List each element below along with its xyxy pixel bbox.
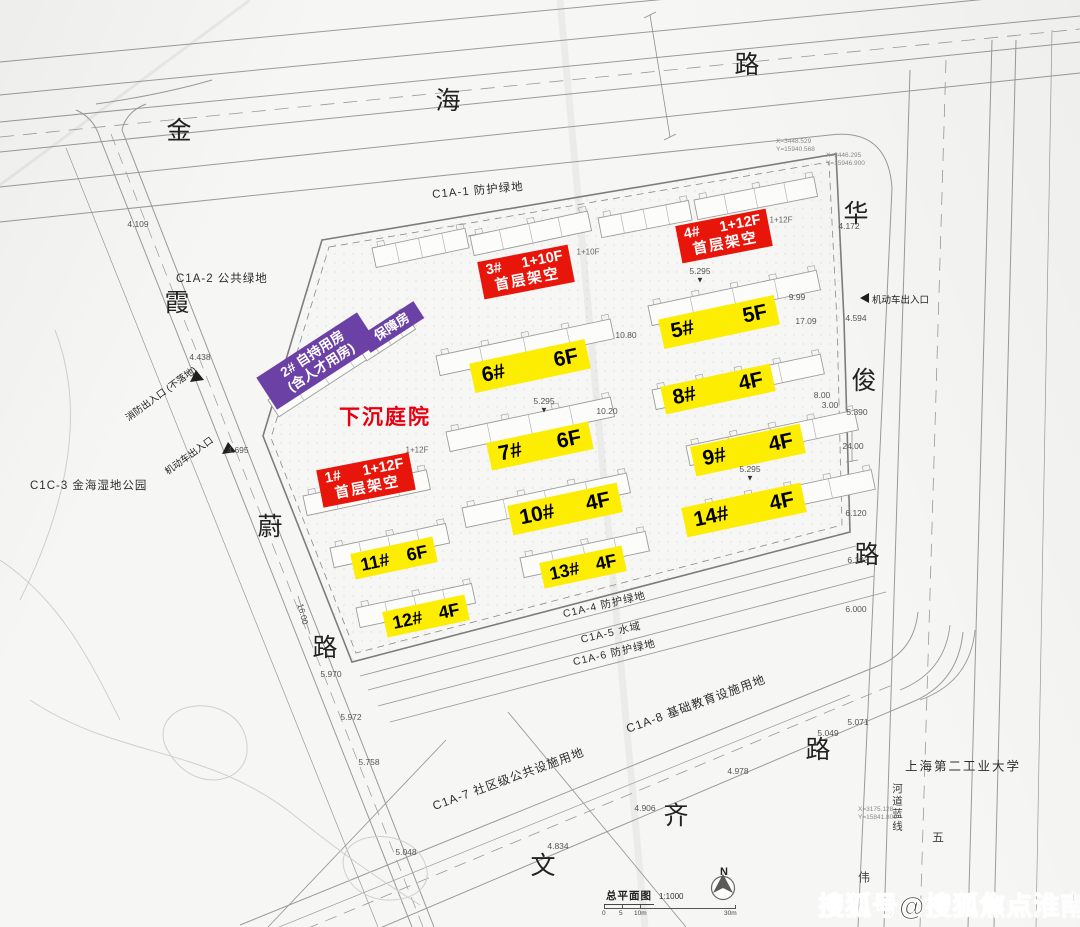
titleblock: 总平面图1:1000 0 5 10m 30m [604,888,754,915]
jinhai-road-lines [0,0,1080,236]
road-xiawei-char-2: 蔚 [257,507,282,543]
survey-coord: X=3175.128Y=15841.800 [858,806,897,821]
basemap-drawing [0,0,1080,927]
elevation-label: 5.049 [817,728,838,738]
survey-coord: X=3446.295Y=15946.900 [826,152,865,167]
road-jinhai-char-1: 金 [166,111,191,147]
building-7-floors: 6F [555,426,584,455]
building-10-floors: 4F [584,488,613,517]
road-wenqi-char-1: 文 [530,846,555,882]
dimension-label: 10.80 [615,330,636,340]
elevation-label: 5.390 [846,407,867,417]
elevation-label: 5.758 [358,757,379,767]
elevation-label: 4.834 [547,841,568,851]
road-huajun-char-3: 路 [854,535,879,571]
elevation-label: 5.048 [395,847,416,857]
elevation-label: 4.109 [127,219,148,229]
grade-marker-icon: ▼ [540,406,548,415]
elevation-label: 5.295 [739,464,760,474]
elevation-label: 5.295 [533,396,554,406]
plan-scale: 1:1000 [659,892,683,901]
grade-marker-icon: ▼ [746,474,754,483]
building-6-floors: 6F [551,344,580,373]
parcel-c1c3: C1C-3 金海湿地公园 [30,477,147,493]
elevation-label: 4.978 [727,766,748,776]
building-11-num: 11# [359,549,392,576]
grade-marker-icon: ▼ [696,276,704,285]
building-11-floors: 6F [405,541,430,566]
plan-title: 总平面图 [604,888,654,905]
building-5-num: 5# [669,316,697,344]
building-12-floors: 4F [437,599,462,624]
building-6-num: 6# [480,360,508,388]
building-9-floors: 4F [767,429,796,458]
building-14-num: 14# [692,502,731,533]
road-jinhai-char-2: 海 [435,81,460,117]
building-7-num: 7# [496,438,524,466]
elevation-label: 5.972 [340,712,361,722]
parcel-c1a2: C1A-2 公共绿地 [176,270,268,286]
building-13-floors: 4F [594,550,619,575]
building-9-num: 9# [701,443,729,471]
road-far-char-1: 五 [932,829,944,846]
building-5-floors: 5F [740,300,769,329]
road-wenqi-char-2: 齐 [663,796,688,832]
elevation-label: 5.295 [689,266,710,276]
sunken-courtyard-label: 下沉庭院 [339,401,431,431]
elevation-label: 4.906 [634,803,655,813]
floor-note-2: 1+12F [770,216,793,225]
floor-note-3: 1+12F [406,446,429,455]
building-12-num: 12# [391,607,425,634]
landmark-university: 上海第二工业大学 [905,756,1021,775]
elevation-label: 4.695 [227,445,248,455]
road-far-char-2: 伟 [858,869,870,886]
road-xiawei-char-1: 霞 [164,283,189,319]
elevation-label: 5.071 [847,717,868,727]
elevation-label: 4.172 [838,221,859,231]
site-plan-page: 金 海 路 霞 蔚 路 华 俊 路 文 齐 路 五 伟 C1A-1 防护绿地 C… [0,0,1080,927]
building-14-floors: 4F [767,488,796,517]
watermark: 搜狐号@搜狐焦点淮南站 [818,886,1080,923]
floor-note-1: 1+10F [577,248,600,257]
road-xiawei-char-3: 路 [312,628,337,664]
building-8-floors: 4F [737,368,766,397]
elevation-label: 4.438 [189,352,210,362]
elevation-label: 9.99 [789,292,806,302]
north-label: N [706,862,742,880]
elevation-label: 5.970 [320,669,341,679]
building-13-num: 13# [548,558,582,585]
building-10-num: 10# [518,500,557,531]
elevation-label: 17.09 [795,316,816,326]
vehicle-entrance-east-label: 机动车出入口 [872,292,929,306]
elevation-label: 8.00 [814,390,831,400]
scale-bar: 0 5 10m 30m [604,908,736,915]
dimension-label: 24.00 [842,441,863,451]
elevation-label: 6.120 [845,508,866,518]
elevation-label: 3.00 [822,400,839,410]
elevation-label: 6.000 [845,604,866,614]
road-huajun-char-2: 俊 [851,361,876,397]
elevation-label: 6.193 [847,555,868,565]
road-jinhai-char-3: 路 [734,45,759,81]
elevation-label: 4.594 [845,313,866,323]
dimension-label: 10.20 [596,406,617,416]
building-8-num: 8# [671,382,699,410]
survey-coord: X=3448.529Y=15940.568 [776,138,815,153]
